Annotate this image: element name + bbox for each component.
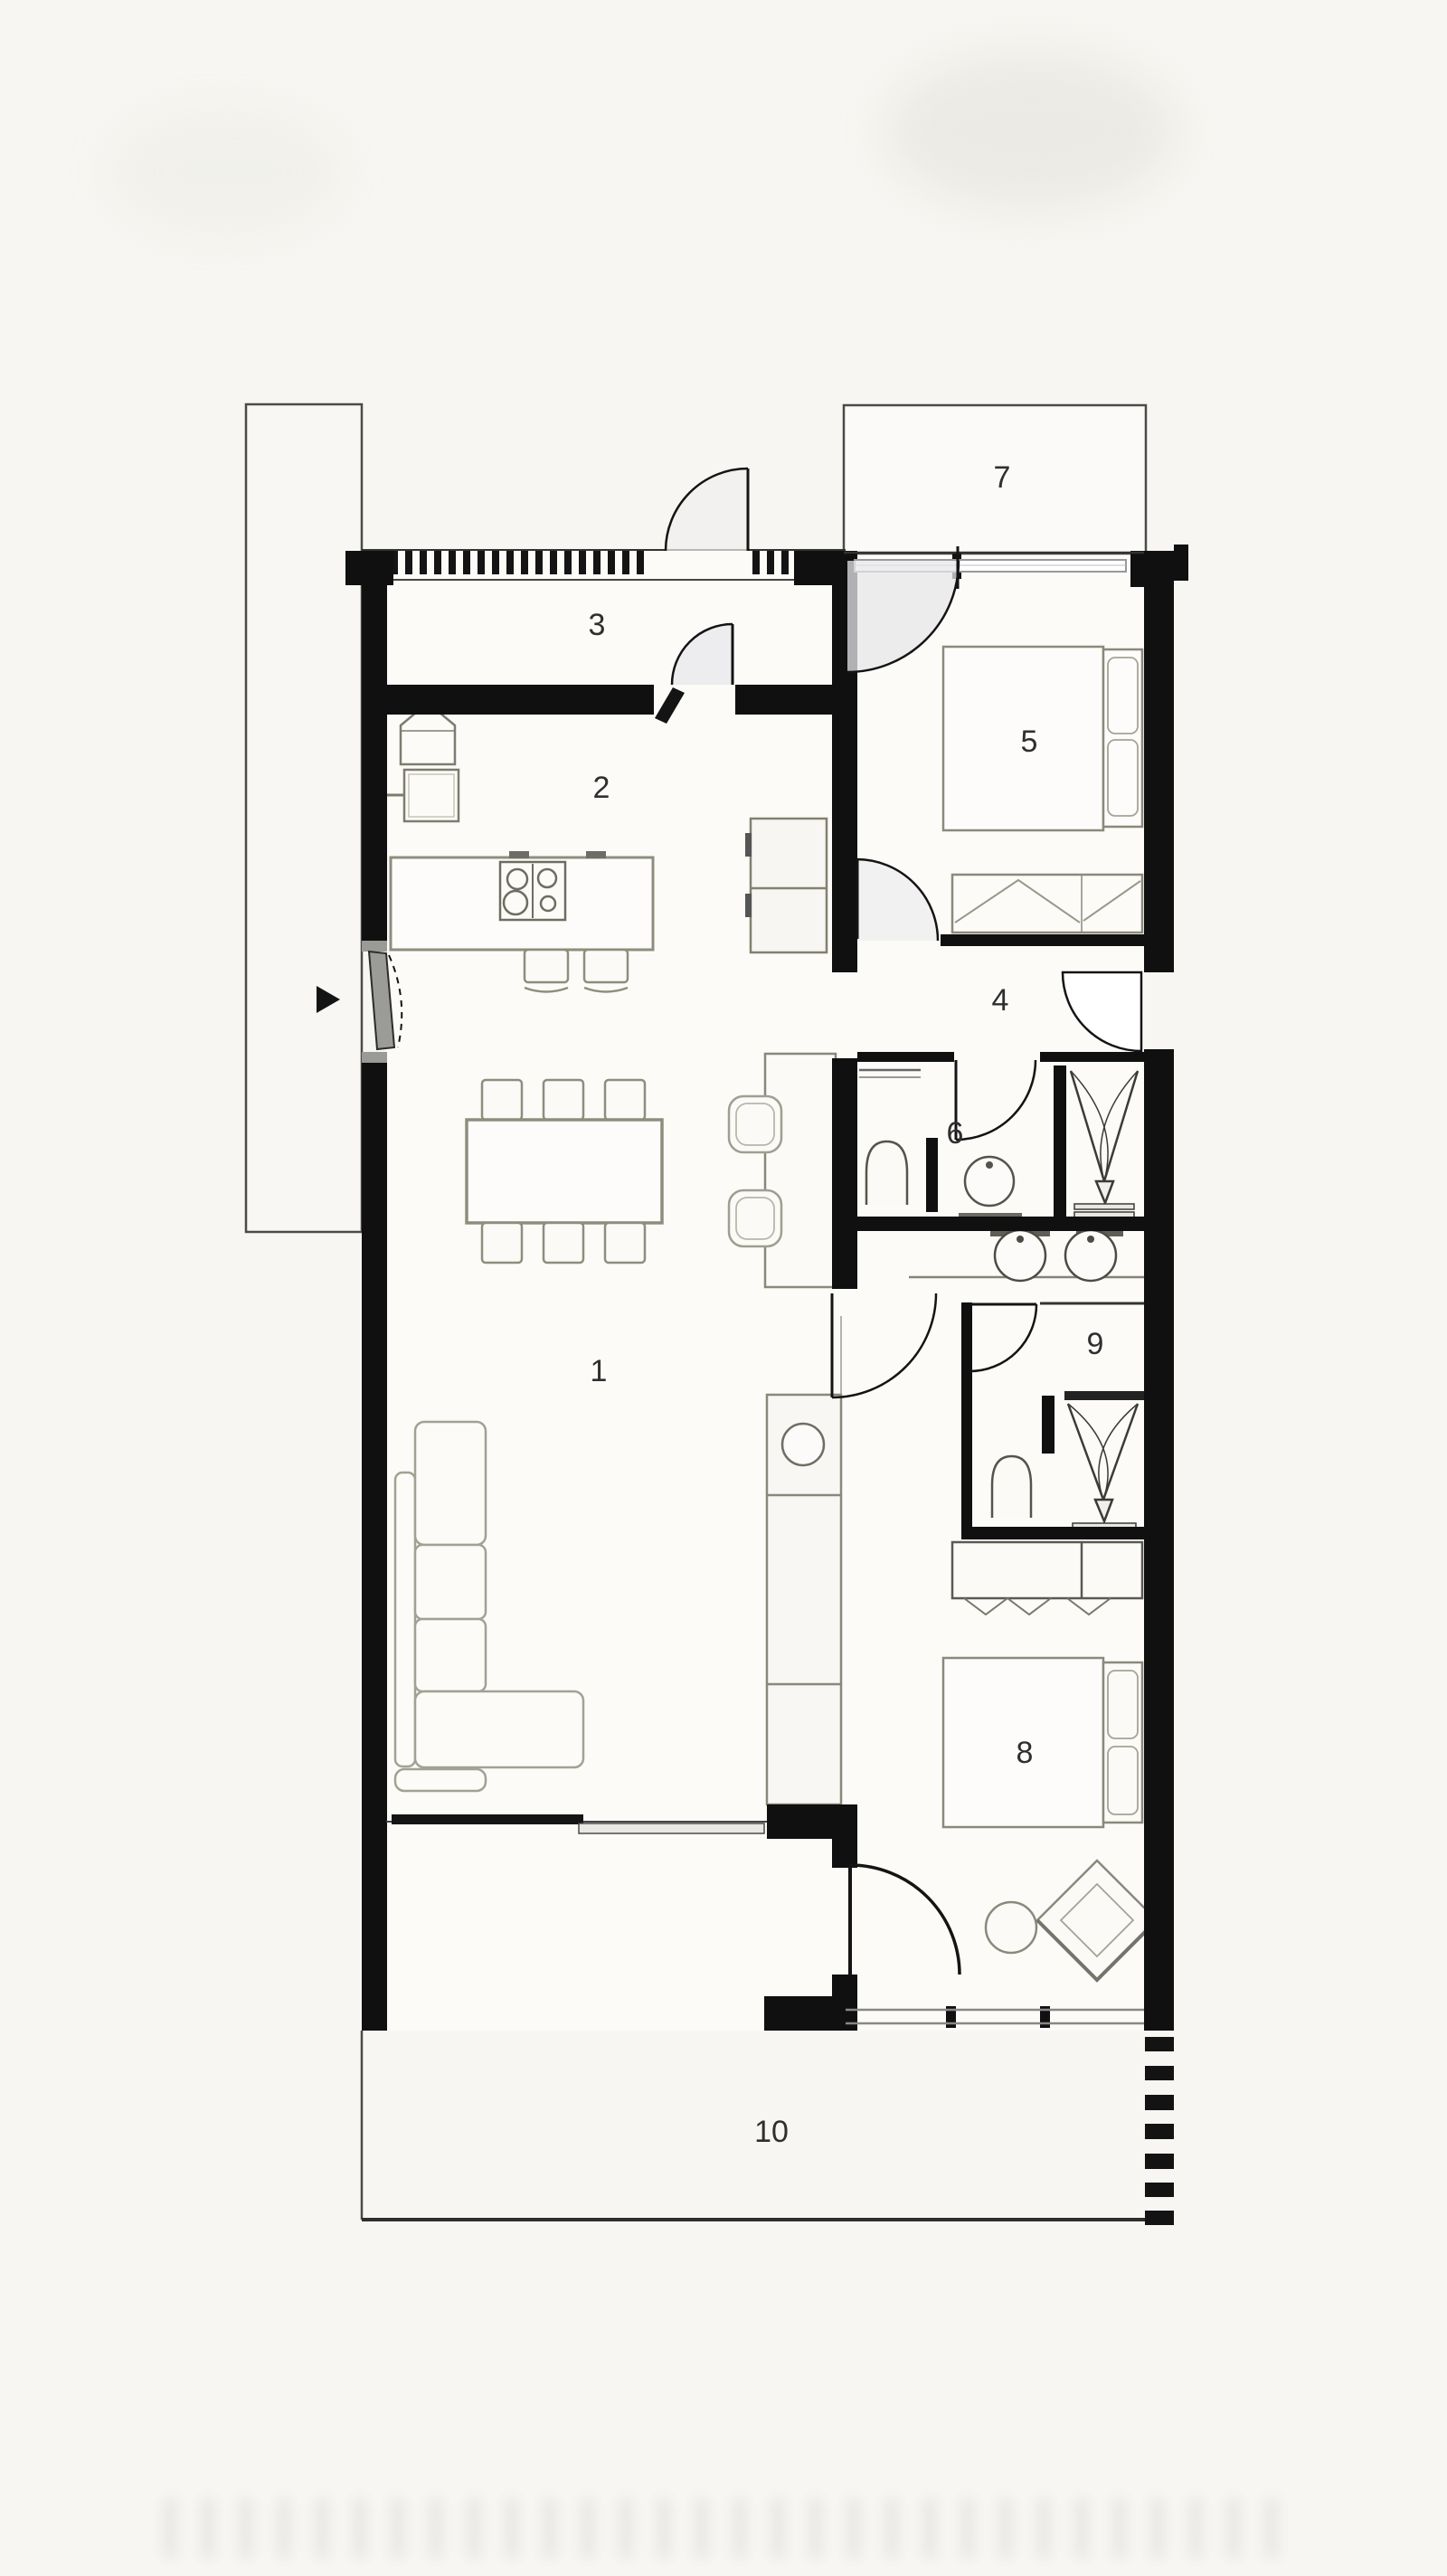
sofa-cushion: [415, 1545, 486, 1619]
pillow: [1108, 1747, 1138, 1814]
sofa-ottoman: [395, 1769, 486, 1791]
desk: [765, 1054, 836, 1287]
room-label-terrace: 10: [754, 2117, 789, 2147]
entry-window-screen: [393, 551, 651, 574]
dining-table: [467, 1120, 662, 1223]
toilet: [992, 1456, 1031, 1518]
paper-artifact-strip: [163, 2498, 1284, 2558]
dining-chair: [482, 1080, 522, 1120]
pillow: [1108, 658, 1138, 734]
room-label-kitchen: 2: [593, 772, 610, 803]
toilet: [866, 1141, 907, 1205]
pillow: [1108, 740, 1138, 816]
dining-chair: [544, 1080, 583, 1120]
room-label-bedroom1: 5: [1021, 726, 1038, 757]
exterior-wall-left: [362, 551, 387, 950]
room-label-living: 1: [591, 1356, 608, 1387]
exterior-wall-right: [1144, 551, 1174, 972]
dining-chair: [544, 1223, 583, 1263]
dining-chair: [482, 1223, 522, 1263]
sofa-cushion: [415, 1422, 486, 1545]
utility-column: [767, 1395, 841, 1804]
hall-closet: [751, 819, 827, 952]
sofa-backrest: [395, 1473, 415, 1766]
room-label-bedroom2: 8: [1017, 1738, 1034, 1768]
room-label-ensuite: 9: [1087, 1329, 1104, 1359]
dining-chair: [605, 1080, 645, 1120]
bedroom1-furniture: [943, 647, 1142, 933]
dresser: [952, 875, 1142, 933]
entry-exterior-door: [666, 469, 748, 551]
terrace-dashed-wall: [1145, 2037, 1174, 2225]
pouf: [986, 1902, 1036, 1953]
side-walkway: [246, 404, 362, 1232]
dining-furniture: [467, 1080, 662, 1263]
floor-plan-page: 1 2 3 4 5 6 7 8 9 10: [0, 0, 1447, 2576]
room-label-bathroom: 6: [947, 1118, 964, 1149]
room-label-entry: 3: [589, 610, 606, 640]
washing-machine: [782, 1424, 824, 1465]
dining-chair: [605, 1223, 645, 1263]
sofa-cushion: [415, 1619, 486, 1691]
floor-plan-drawing: [0, 0, 1447, 2576]
pillow: [1108, 1671, 1138, 1738]
room-label-hallway: 4: [992, 985, 1009, 1016]
room-label-balcony: 7: [994, 462, 1011, 493]
entry-kitchen-wall: [386, 685, 654, 715]
cooktop: [500, 862, 565, 920]
sofa-chaise: [415, 1691, 583, 1767]
bedroom1-south-wall: [941, 934, 1144, 946]
